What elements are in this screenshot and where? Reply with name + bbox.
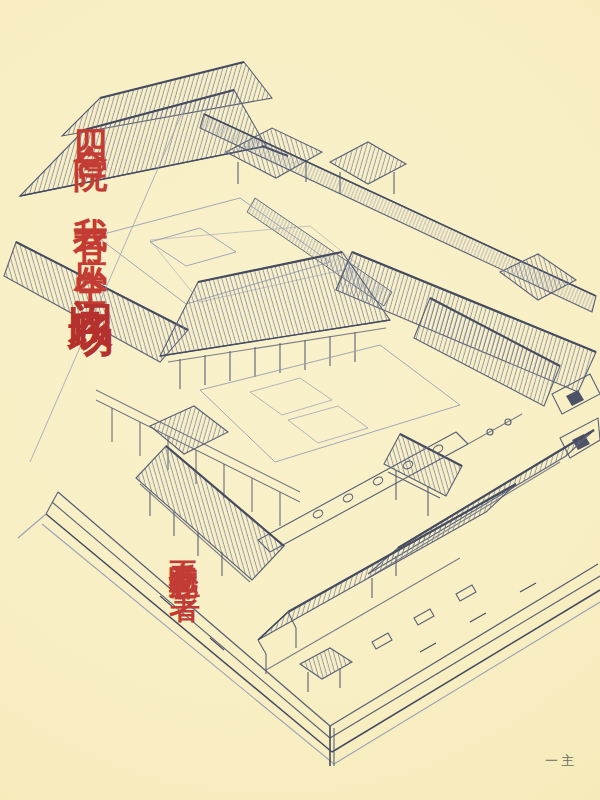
middle-hall: [160, 252, 390, 389]
author-name: 不爱吃豆沙包: [168, 538, 200, 550]
book-cover: 四合院，我有一座空间农场 不爱吃豆沙包著 一主: [0, 0, 600, 800]
west-wing: [136, 406, 284, 582]
inner-gate-and-wall: [258, 414, 522, 552]
book-title: 四合院，我有一座空间农场: [68, 104, 113, 284]
corner-annotation: 一主: [545, 752, 577, 770]
northeast-wall-and-wing: [200, 114, 596, 392]
author-credit: 不爱吃豆沙包著: [169, 538, 200, 565]
book-title-bold-part: 间农场: [66, 263, 116, 284]
front-inner-building: [258, 484, 516, 692]
book-title-script-part: 四合院，我有一座空: [72, 104, 110, 255]
outer-walls: [18, 492, 600, 766]
